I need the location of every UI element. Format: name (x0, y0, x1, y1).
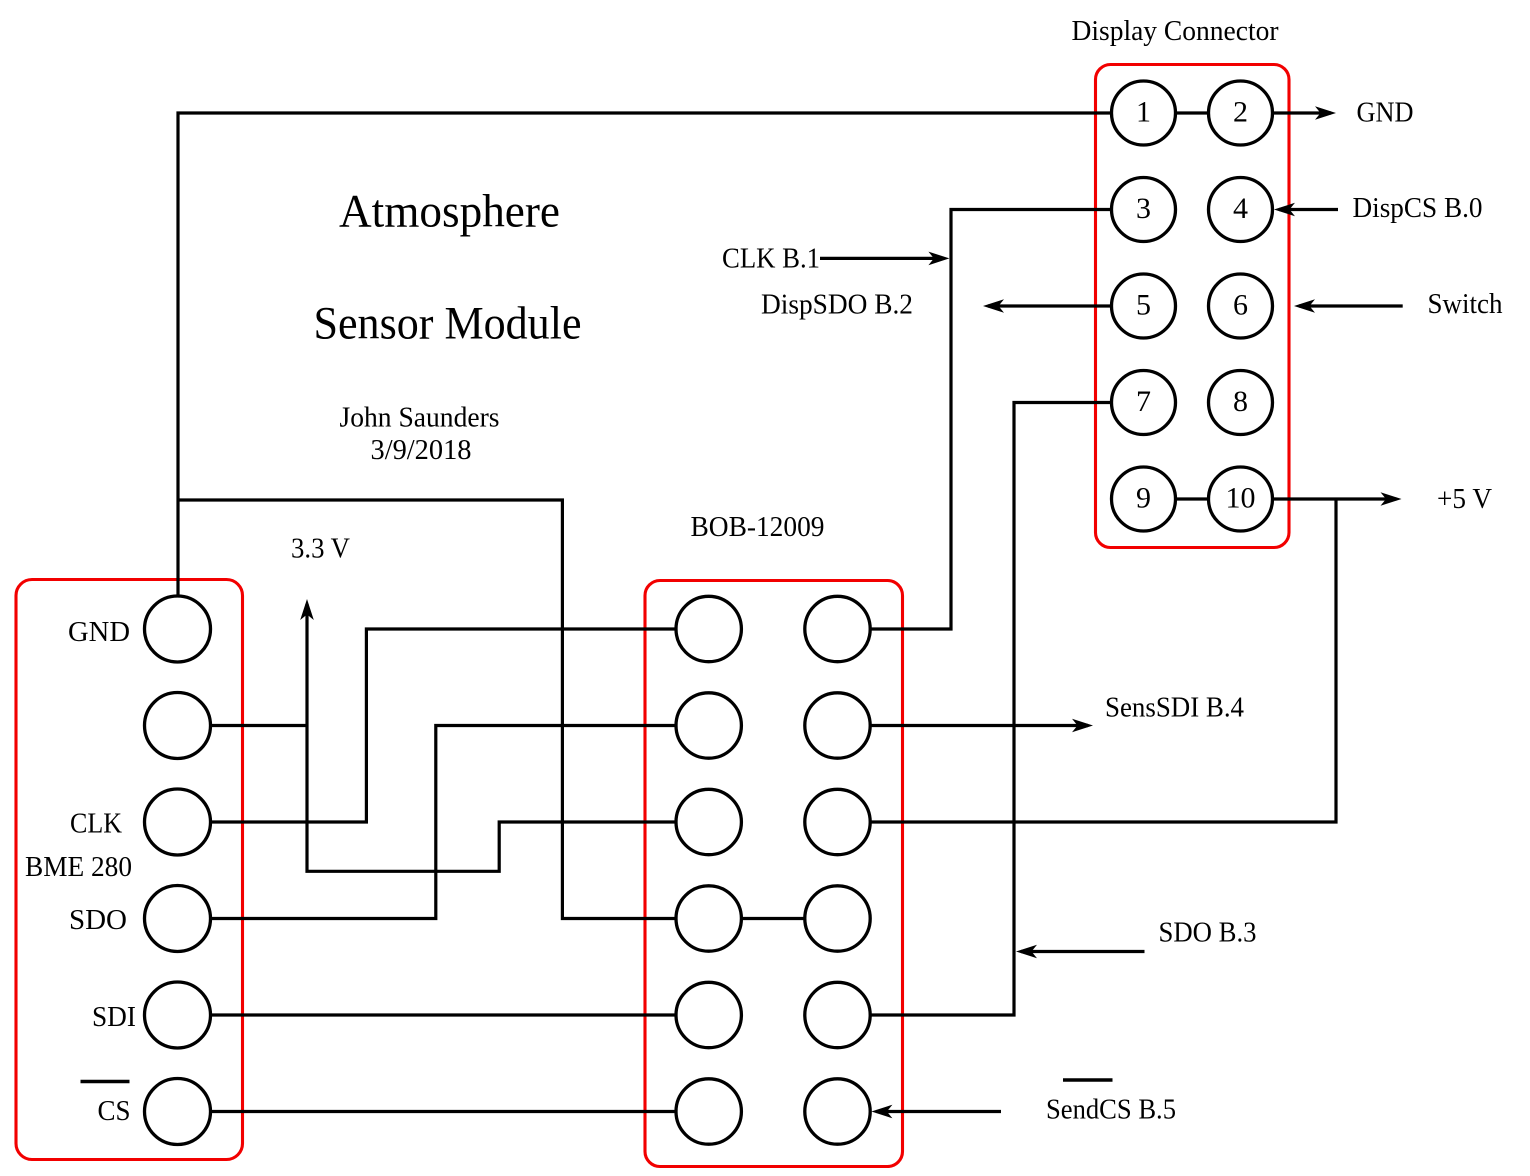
svg-text:GND: GND (68, 616, 130, 648)
svg-text:GND: GND (1357, 97, 1414, 129)
svg-text:DispSDO B.2: DispSDO B.2 (761, 289, 913, 321)
svg-text:BME 280: BME 280 (25, 851, 132, 883)
svg-text:CLK B.1: CLK B.1 (722, 243, 820, 275)
svg-text:10: 10 (1226, 482, 1256, 515)
svg-text:SensSDI B.4: SensSDI B.4 (1105, 692, 1244, 724)
svg-text:Sensor Module: Sensor Module (314, 298, 582, 350)
svg-text:Atmosphere: Atmosphere (339, 186, 560, 238)
svg-text:7: 7 (1136, 385, 1151, 418)
svg-text:SDO B.3: SDO B.3 (1159, 917, 1257, 949)
svg-text:3: 3 (1136, 192, 1151, 225)
svg-text:CS: CS (98, 1095, 131, 1127)
svg-text:DispCS B.0: DispCS B.0 (1353, 192, 1483, 224)
svg-text:1: 1 (1136, 96, 1151, 129)
svg-text:SDI: SDI (92, 1001, 136, 1033)
svg-text:John Saunders: John Saunders (340, 402, 500, 434)
svg-text:Switch: Switch (1428, 288, 1503, 320)
svg-text:BOB-12009: BOB-12009 (691, 511, 825, 543)
svg-text:9: 9 (1136, 482, 1151, 515)
svg-text:3/9/2018: 3/9/2018 (371, 434, 472, 466)
svg-text:SendCS B.5: SendCS B.5 (1046, 1094, 1176, 1126)
svg-text:+5 V: +5 V (1437, 483, 1492, 515)
svg-text:3.3 V: 3.3 V (291, 533, 350, 565)
svg-text:5: 5 (1136, 289, 1151, 322)
svg-text:Display Connector: Display Connector (1072, 15, 1279, 47)
svg-text:8: 8 (1233, 385, 1248, 418)
svg-text:2: 2 (1233, 96, 1248, 129)
svg-text:CLK: CLK (70, 808, 122, 840)
svg-text:4: 4 (1233, 192, 1248, 225)
svg-text:6: 6 (1233, 289, 1248, 322)
svg-text:SDO: SDO (69, 904, 127, 936)
